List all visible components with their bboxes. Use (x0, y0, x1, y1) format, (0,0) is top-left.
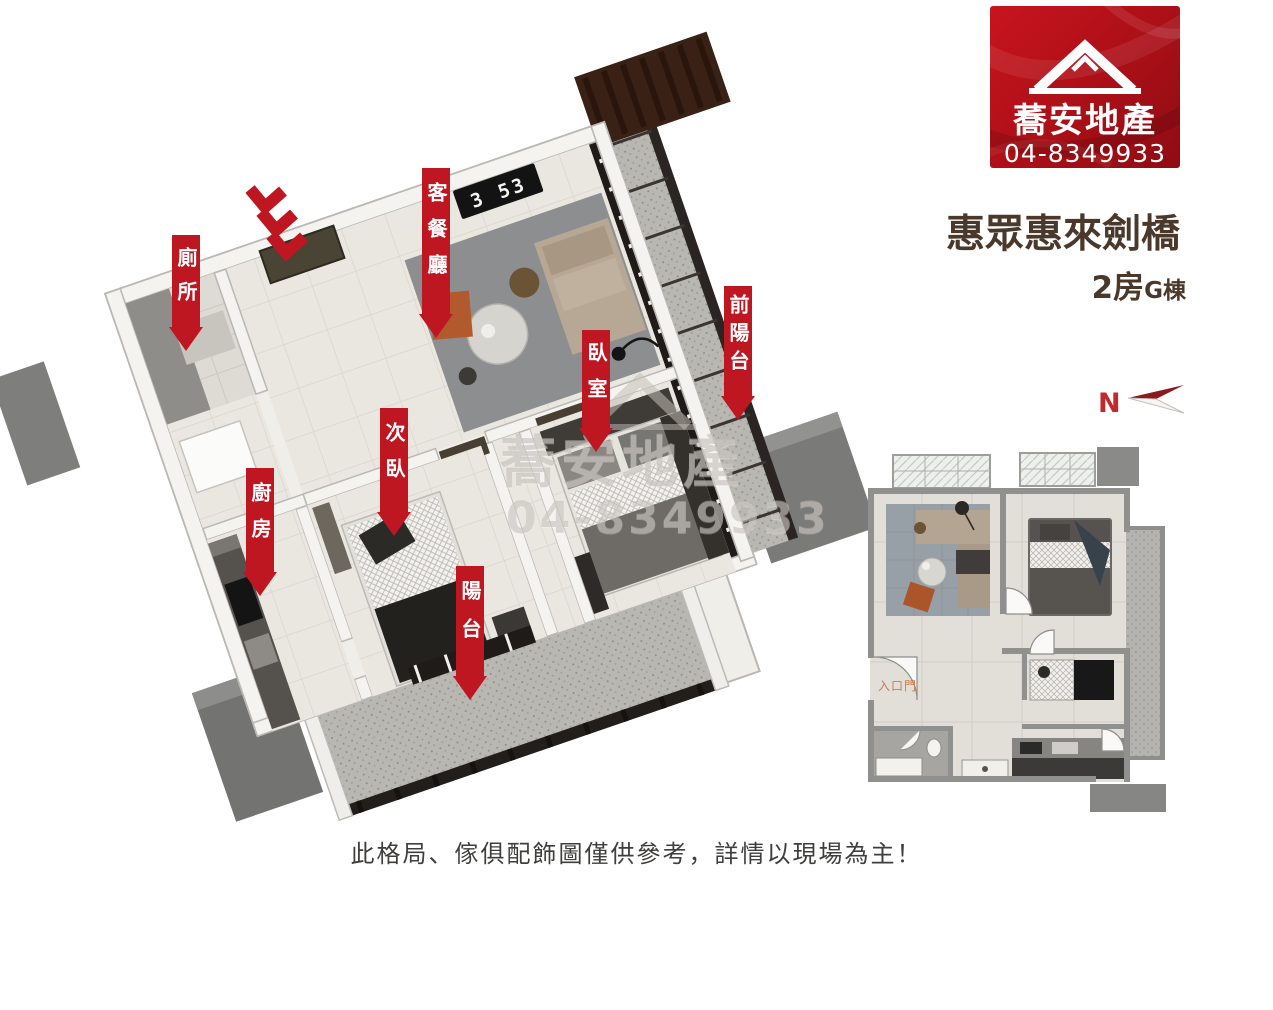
compass-arrow-dark (1128, 385, 1184, 399)
room-label-kitchen: 廚房 (246, 468, 274, 572)
plan2d-master-bedroom (1028, 518, 1112, 616)
plan2d-living-room (886, 501, 990, 616)
flyer-page: { "brand": { "name": "蕎安地產", "phone": "0… (0, 0, 1273, 900)
entrance-door-label: 入口門 (878, 679, 917, 693)
room-label-balcony: 陽台 (456, 566, 484, 676)
brand-badge: 蕎安地產 04-8349933 (990, 6, 1180, 168)
plan2d-bottom-block (1090, 784, 1166, 812)
room-label-front-balcony: 前陽台 (724, 286, 752, 396)
room-label-bedroom: 臥室 (582, 330, 610, 428)
plan2d-top-windows (893, 447, 1139, 488)
listing-rooms: 2房 (1092, 270, 1145, 306)
plan2d-right-balcony (1126, 526, 1165, 760)
compass: N (1090, 376, 1190, 428)
room-label-second-bedroom: 次臥 (380, 408, 408, 512)
listing-title: 惠眾惠來劍橋 (946, 203, 1188, 259)
listing-building: G棟 (1144, 278, 1186, 304)
floorplan-2d-render: 入口門 (862, 442, 1174, 816)
room-label-living-dining: 客餐廳 (422, 168, 450, 314)
brand-name: 蕎安地產 (990, 102, 1180, 140)
disclaimer-text: 此格局、傢俱配飾圖僅供參考，詳情以現場為主！ (0, 834, 1273, 869)
plan2d-second-bedroom (1030, 660, 1114, 700)
listing-subtitle: 2房G棟 (946, 262, 1188, 307)
compass-north-label: N (1098, 388, 1121, 419)
listing-title-block: 惠眾惠來劍橋 2房G棟 (946, 203, 1188, 307)
entrance-direction-arrows-icon (238, 183, 314, 275)
plan2d-bathroom (874, 730, 948, 778)
brand-phone: 04-8349933 (990, 140, 1180, 168)
room-label-toilet: 廁所 (172, 235, 200, 327)
compass-arrow-light (1128, 398, 1184, 413)
brand-house-icon (1023, 36, 1147, 98)
